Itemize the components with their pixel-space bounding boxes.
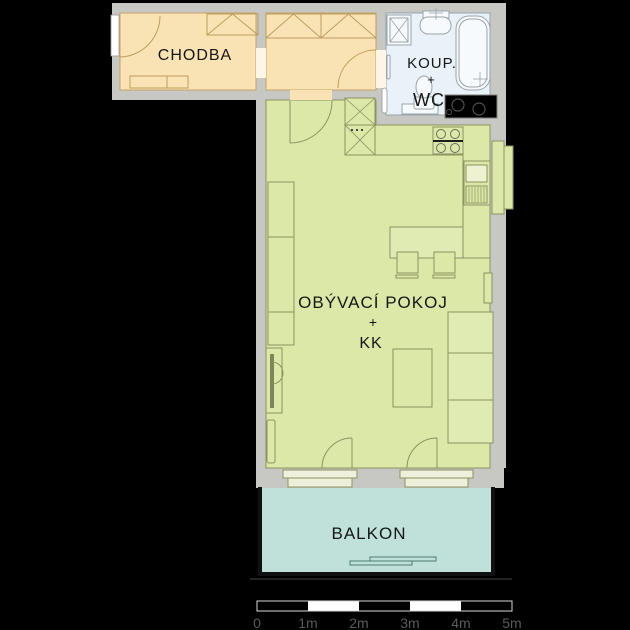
wall-hall-bottom [112, 90, 376, 100]
balcony-railing-right [491, 487, 495, 576]
radiator-icon [267, 420, 275, 463]
tall-cabinet-icon [345, 98, 375, 155]
wall-living-left [256, 100, 266, 468]
window-icon [283, 470, 357, 487]
label-bathroom-line3: WC [413, 90, 445, 110]
scale-label-2: 2m [349, 615, 368, 630]
balcony-railing-bottom [258, 572, 495, 576]
window-icon [400, 470, 473, 487]
scale-label-0: 0 [253, 615, 261, 630]
radiator-icon [484, 273, 492, 303]
wall-duct-outer [504, 146, 513, 209]
washing-machine-icon [387, 15, 411, 45]
floorplan-canvas: CHODBA KOUP. + WC OBÝVACÍ POKOJ + KK BAL… [0, 0, 630, 630]
scale-label-1: 1m [298, 615, 317, 630]
label-living-line1: OBÝVACÍ POKOJ [298, 293, 448, 312]
washbasin-icon [420, 8, 451, 34]
label-living-line2: + [369, 314, 377, 330]
balcony-railing-left [258, 487, 262, 576]
label-bathroom-line1: KOUP. [407, 55, 457, 72]
bathtub-icon [456, 16, 490, 90]
wall-duct [492, 141, 504, 214]
sofa-icon [448, 312, 493, 443]
label-bathroom-line2: + [427, 72, 435, 87]
coffee-table-icon [393, 349, 432, 407]
floorplan-drawing: CHODBA KOUP. + WC OBÝVACÍ POKOJ + KK BAL… [0, 0, 630, 630]
scale-label-4: 4m [451, 615, 470, 630]
towel-rail-icon [387, 55, 390, 79]
entrance-door-icon [111, 15, 119, 56]
label-balcony: BALKON [332, 524, 407, 543]
label-living-line3: KK [359, 335, 382, 352]
scale-label-3: 3m [400, 615, 419, 630]
hall-passage-opening [256, 48, 266, 78]
scale-label-5: 5m [502, 615, 521, 630]
radiator-icon [266, 348, 283, 413]
bathroom-door-leaf-icon [382, 88, 387, 113]
label-chodba: CHODBA [158, 47, 232, 64]
shaft-icon [445, 95, 497, 118]
scale-bar-icon [257, 601, 512, 611]
bathroom-door-opening [376, 50, 386, 88]
shelving-unit-icon [268, 182, 294, 345]
living-door-threshold [290, 90, 332, 100]
